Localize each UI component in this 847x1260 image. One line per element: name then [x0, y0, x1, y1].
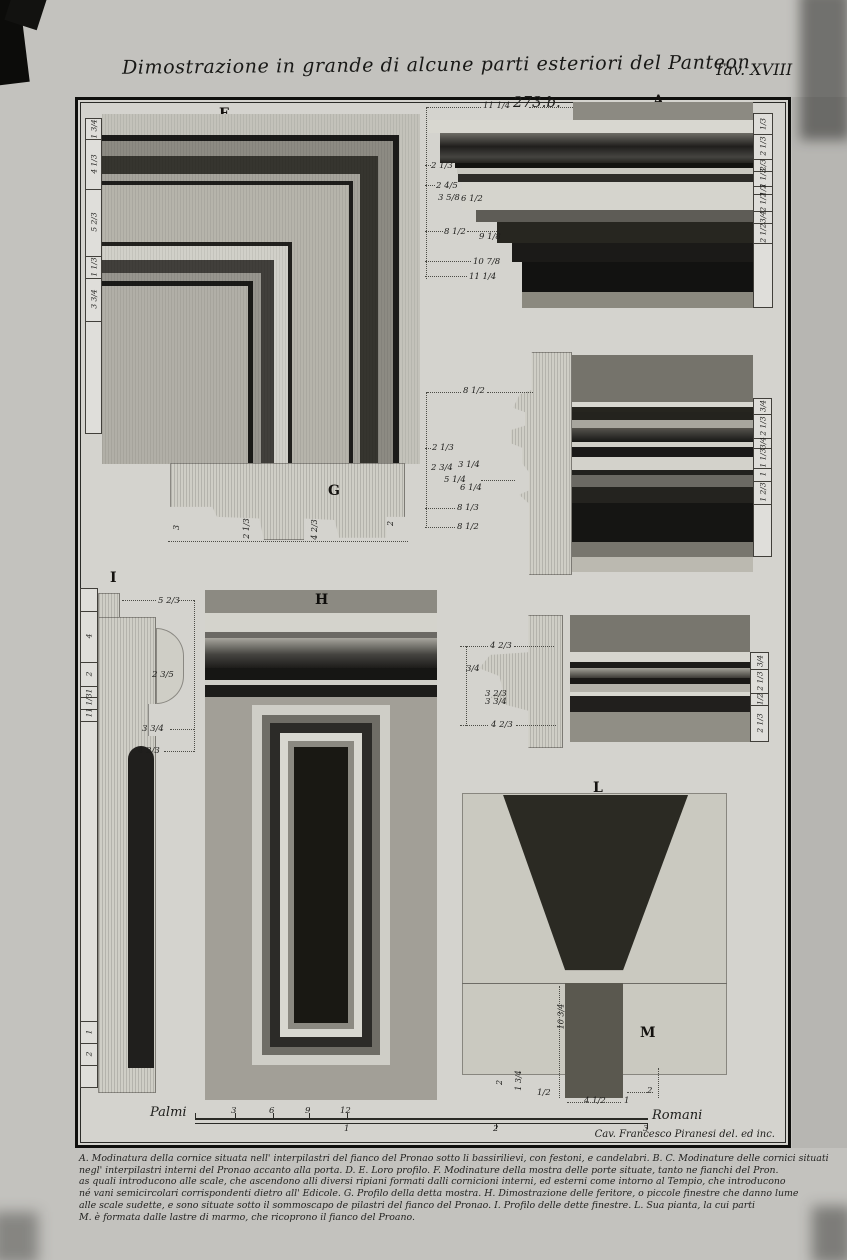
figure-i-window-profile: I 4 2 1 1 1/3 1 1 2 5 2/3 2 3/5 3 3/4	[78, 568, 200, 1105]
band	[572, 355, 753, 402]
scale-tick-label: 6	[269, 1106, 274, 1116]
figure-h-window-elevation: H	[205, 585, 437, 1100]
engraver-credit: Cav. Francesco Piranesi del. ed inc.	[575, 1129, 775, 1140]
measurement-label: 2	[647, 1086, 652, 1096]
measurement-label: 3 3/4	[485, 697, 507, 707]
scale-tick-label: 1	[344, 1124, 349, 1134]
measurement-label: 5 2/3	[158, 596, 180, 606]
caption-line: alle scale sudette, e sono situate sotto…	[79, 1200, 791, 1212]
measurement-label: 2 1/3	[242, 518, 251, 539]
cell-divider	[754, 414, 771, 415]
cell-divider	[754, 243, 772, 244]
caption-line: né vani semicircolari corrispondenti die…	[79, 1188, 791, 1200]
measure-line	[627, 1092, 653, 1093]
profile-silhouette-g	[170, 463, 405, 540]
band	[572, 503, 753, 542]
band	[205, 613, 437, 632]
measurement-label: 2 1/3	[755, 671, 764, 690]
measurement-label: 3 3/4	[142, 724, 164, 734]
plate-caption: A. Modinatura della cornice situata nell…	[79, 1153, 791, 1223]
measurement-label: 2 1/3	[431, 161, 453, 171]
measure-line	[466, 646, 467, 726]
measure-line	[427, 107, 481, 108]
measurement-label: 4	[85, 634, 94, 639]
band	[572, 428, 753, 442]
corner-shade-bottom-right	[812, 1206, 847, 1260]
scale-left-label: Palmi	[150, 1105, 187, 1120]
cell-divider	[754, 504, 771, 505]
band	[570, 615, 750, 652]
measurement-label: 2 3/5	[152, 670, 174, 680]
measure-column-f: 1 3/4 4 1/3 5 2/3 1 1/3 3 3/4	[85, 118, 102, 434]
band	[572, 557, 753, 572]
measurement-label: 3 1/4	[458, 460, 480, 470]
band	[572, 457, 753, 470]
band	[570, 684, 750, 692]
window-shaft-plan	[565, 983, 623, 1098]
cell-divider	[86, 139, 101, 140]
scale-right-label: Romani	[652, 1108, 702, 1123]
profile-silhouette-d	[505, 352, 572, 575]
measure-line	[168, 541, 408, 542]
window-reveal-shaft	[128, 746, 154, 1068]
measure-line	[567, 1102, 621, 1103]
measurement-label: 3/4	[758, 437, 767, 449]
measurement-label: 10 3/4	[556, 1004, 565, 1030]
measure-line	[425, 261, 471, 262]
figure-m-letter: M	[640, 1025, 656, 1041]
caption-line: M. è formata dalle lastre di marmo, che …	[79, 1212, 791, 1224]
band	[458, 174, 753, 182]
hatch-overlay	[102, 114, 420, 464]
measure-line	[425, 231, 443, 232]
scale-tick-label: 3	[231, 1106, 236, 1116]
measurement-label: 2	[85, 1052, 94, 1057]
measure-line	[658, 1068, 659, 1098]
band	[570, 652, 750, 662]
band	[512, 243, 753, 262]
band	[572, 487, 753, 503]
figure-db-cornice: D B 3/4 2 1/3 3/4 1 1/3	[425, 352, 790, 580]
measurement-label: 1 3/4	[89, 119, 98, 138]
measurement-label: 1 1/3	[758, 448, 767, 467]
measure-line	[426, 392, 427, 528]
jamb-roll-molding	[156, 628, 184, 704]
measurement-label: 3/4	[758, 400, 767, 412]
figure-g-letter: G	[328, 483, 340, 499]
cell-divider	[81, 611, 97, 612]
measurement-label: 3/4	[755, 655, 764, 667]
band	[573, 102, 753, 120]
measure-line	[427, 392, 461, 393]
measurement-label: 1 3/4	[514, 1070, 523, 1091]
measurement-label: 2 1/3	[759, 136, 768, 155]
measure-column-b: 3/4 2 1/3 3/4 1 1/3 1 1 2/3	[753, 398, 772, 557]
band	[522, 262, 753, 292]
measurement-label: 4 2/3	[310, 519, 319, 540]
corner-shade-bottom-left	[0, 1212, 38, 1260]
measurement-label: 5 2/3	[89, 212, 98, 231]
measurement-label: 3 5/8	[438, 193, 460, 203]
figure-i-letter: I	[110, 570, 117, 586]
measure-line	[467, 231, 497, 232]
measure-column-a: 1/3 2 1/3 2/3 1 1/3 1/2 2 1/2 3/4 2 1/2	[753, 113, 773, 308]
cell-divider	[81, 686, 97, 687]
measure-line	[481, 480, 515, 481]
measurement-label: 2 1/3	[432, 443, 454, 453]
measurement-label: 1/2	[537, 1088, 551, 1098]
caption-line: as quali introducono alle scale, che asc…	[79, 1176, 791, 1188]
cell-divider	[86, 189, 101, 190]
measurement-label: 2 1/3	[755, 713, 764, 732]
measurement-label: 3/4	[759, 211, 768, 223]
band	[440, 133, 753, 163]
measure-line	[170, 729, 194, 730]
band	[572, 542, 753, 557]
measure-column-i: 4 2 1 1 1/3 1 1 2	[80, 588, 98, 1088]
measurement-label: 1	[624, 1096, 629, 1106]
scale-tick-label: 2	[493, 1124, 498, 1134]
band	[570, 712, 750, 742]
measurement-label: 2	[386, 521, 395, 526]
measurement-label: 1 1/3	[85, 693, 94, 712]
measure-line	[426, 107, 427, 279]
measurement-label: 1	[85, 713, 94, 718]
measurement-label: 1/2	[755, 693, 764, 705]
cell-divider	[86, 278, 101, 279]
measurement-label: 3	[172, 525, 181, 530]
band	[570, 668, 750, 678]
measurement-label: 1 2/3	[758, 482, 767, 501]
measure-line	[529, 107, 573, 108]
measure-line	[425, 276, 467, 277]
cell-divider	[754, 134, 772, 135]
measure-line	[425, 508, 455, 509]
measurement-label: 1	[758, 472, 767, 477]
cell-divider	[81, 721, 97, 722]
measure-column-c: 3/4 2 1/3 1/2 2 1/3	[750, 652, 769, 742]
ref-number: 273.b.	[513, 93, 561, 111]
measure-line	[460, 646, 488, 647]
measurement-label: 2 1/2	[759, 223, 768, 242]
measurement-label: 2	[495, 1080, 504, 1085]
measurement-label: 6 1/4	[460, 483, 482, 493]
band	[572, 475, 753, 487]
measurement-label: 8 1/2	[457, 522, 479, 532]
measure-line	[194, 600, 195, 752]
band	[570, 696, 750, 712]
figure-g-profile: G 3 2 1/3 4 2/3 2	[140, 455, 435, 550]
measure-line	[514, 646, 554, 647]
measurement-label: 9 1/8	[479, 232, 501, 242]
band	[572, 412, 753, 420]
caption-line: negl' interpilastri interni del Pronao a…	[79, 1165, 791, 1177]
measurement-label: 8 1/2	[463, 386, 485, 396]
measurement-label: 2 4/5	[436, 181, 458, 191]
measurement-label: 8 1/2	[444, 227, 466, 237]
plate-title: Dimostrazione in grande di alcune parti …	[122, 51, 751, 78]
band	[205, 685, 437, 697]
plate-number: Tav. XVIII	[714, 60, 792, 79]
caption-line: A. Modinatura della cornice situata nell…	[79, 1153, 791, 1165]
band	[497, 222, 753, 243]
measurement-label: 2 1/2	[759, 192, 768, 211]
band	[572, 447, 753, 457]
measurement-label: 1 1/3	[89, 257, 98, 276]
figure-lm-window-plan: L M 10 3/4 2 1 3/4 1/2 4 1/2 1 2	[455, 780, 790, 1112]
figure-a-cornice: 273.b. A 1/3 2 1/3 2/3 1 1/3 1/2 2	[425, 95, 790, 315]
measurement-label: 11 1/4	[483, 101, 510, 111]
band	[522, 292, 753, 308]
measure-line	[460, 725, 488, 726]
measure-line	[487, 392, 533, 393]
cell-divider	[86, 321, 101, 322]
cell-divider	[81, 1043, 97, 1044]
cell-divider	[81, 1065, 97, 1066]
figure-ec-cornice: E C 3/4 2 1/3 1/2 2 1/3 4 2/3 3/4 3 2/3 …	[460, 600, 790, 755]
measurement-label: 8 1/3	[457, 503, 479, 513]
profile-silhouette-e	[472, 615, 563, 748]
measurement-label: 2 1/3	[758, 416, 767, 435]
figure-h-letter: H	[315, 592, 328, 608]
measure-line	[516, 725, 556, 726]
right-margin-shade	[792, 97, 847, 1148]
measurement-label: 2	[85, 672, 94, 677]
measure-line	[425, 527, 455, 528]
measure-line	[559, 986, 560, 1098]
measurement-label: 4 2/3	[490, 641, 512, 651]
cell-divider	[81, 662, 97, 663]
measure-line	[178, 600, 194, 601]
measure-line	[164, 751, 194, 752]
band	[476, 210, 753, 222]
band	[572, 420, 753, 428]
measurement-label: 1/3	[759, 118, 768, 130]
frame-corner-bands	[102, 114, 420, 464]
band	[205, 668, 437, 680]
cell-divider	[751, 705, 768, 706]
scale-bar-line	[195, 1118, 648, 1124]
measurement-label: 2 3/4	[431, 463, 453, 473]
measurement-label: 4 1/2	[584, 1096, 606, 1106]
cell-divider	[751, 669, 768, 670]
cell-divider	[81, 1021, 97, 1022]
cell-divider	[81, 1087, 97, 1088]
window-opening	[294, 747, 348, 1023]
jamb-body-top	[98, 593, 120, 619]
cell-divider	[754, 468, 771, 469]
measurement-label: 10 7/8	[473, 257, 500, 267]
scale-tick	[195, 1113, 196, 1118]
measurement-label: 4 1/3	[89, 154, 98, 173]
measurement-label: 6 1/2	[461, 194, 483, 204]
scale-tick-label: 9	[305, 1106, 310, 1116]
measurement-label: 4 2/3	[491, 720, 513, 730]
scale-tick-label: 12	[340, 1106, 351, 1116]
band	[428, 120, 753, 133]
measurement-label: 11 1/4	[469, 272, 496, 282]
figure-f-door-frame-corner: F 1 3/4 4 1/3 5 2/3 1 1/3 3 3/4	[85, 104, 420, 464]
measurement-label: 3/4	[466, 664, 480, 674]
measurement-label: 4 2/3	[138, 746, 160, 756]
band	[462, 182, 753, 210]
measurement-label: 1	[85, 1030, 94, 1035]
engraving-photo: Dimostrazione in grande di alcune parti …	[0, 0, 847, 1260]
measurement-label: 3 3/4	[89, 289, 98, 308]
band	[205, 638, 437, 668]
measure-line	[122, 600, 156, 601]
